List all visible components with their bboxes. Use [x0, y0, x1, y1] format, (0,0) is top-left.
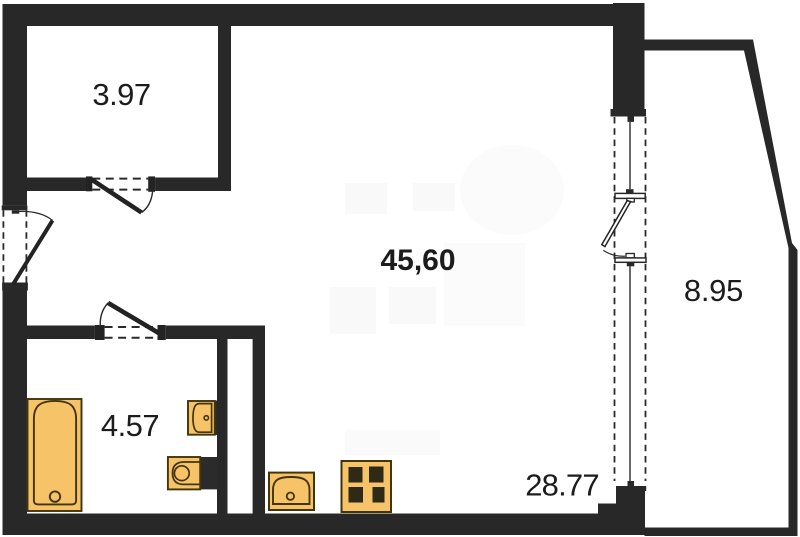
svg-text:4.57: 4.57 [101, 408, 159, 443]
svg-text:28.77: 28.77 [525, 468, 599, 503]
svg-text:8.95: 8.95 [684, 273, 743, 308]
svg-text:3.97: 3.97 [92, 77, 150, 112]
svg-text:45,60: 45,60 [380, 244, 455, 277]
